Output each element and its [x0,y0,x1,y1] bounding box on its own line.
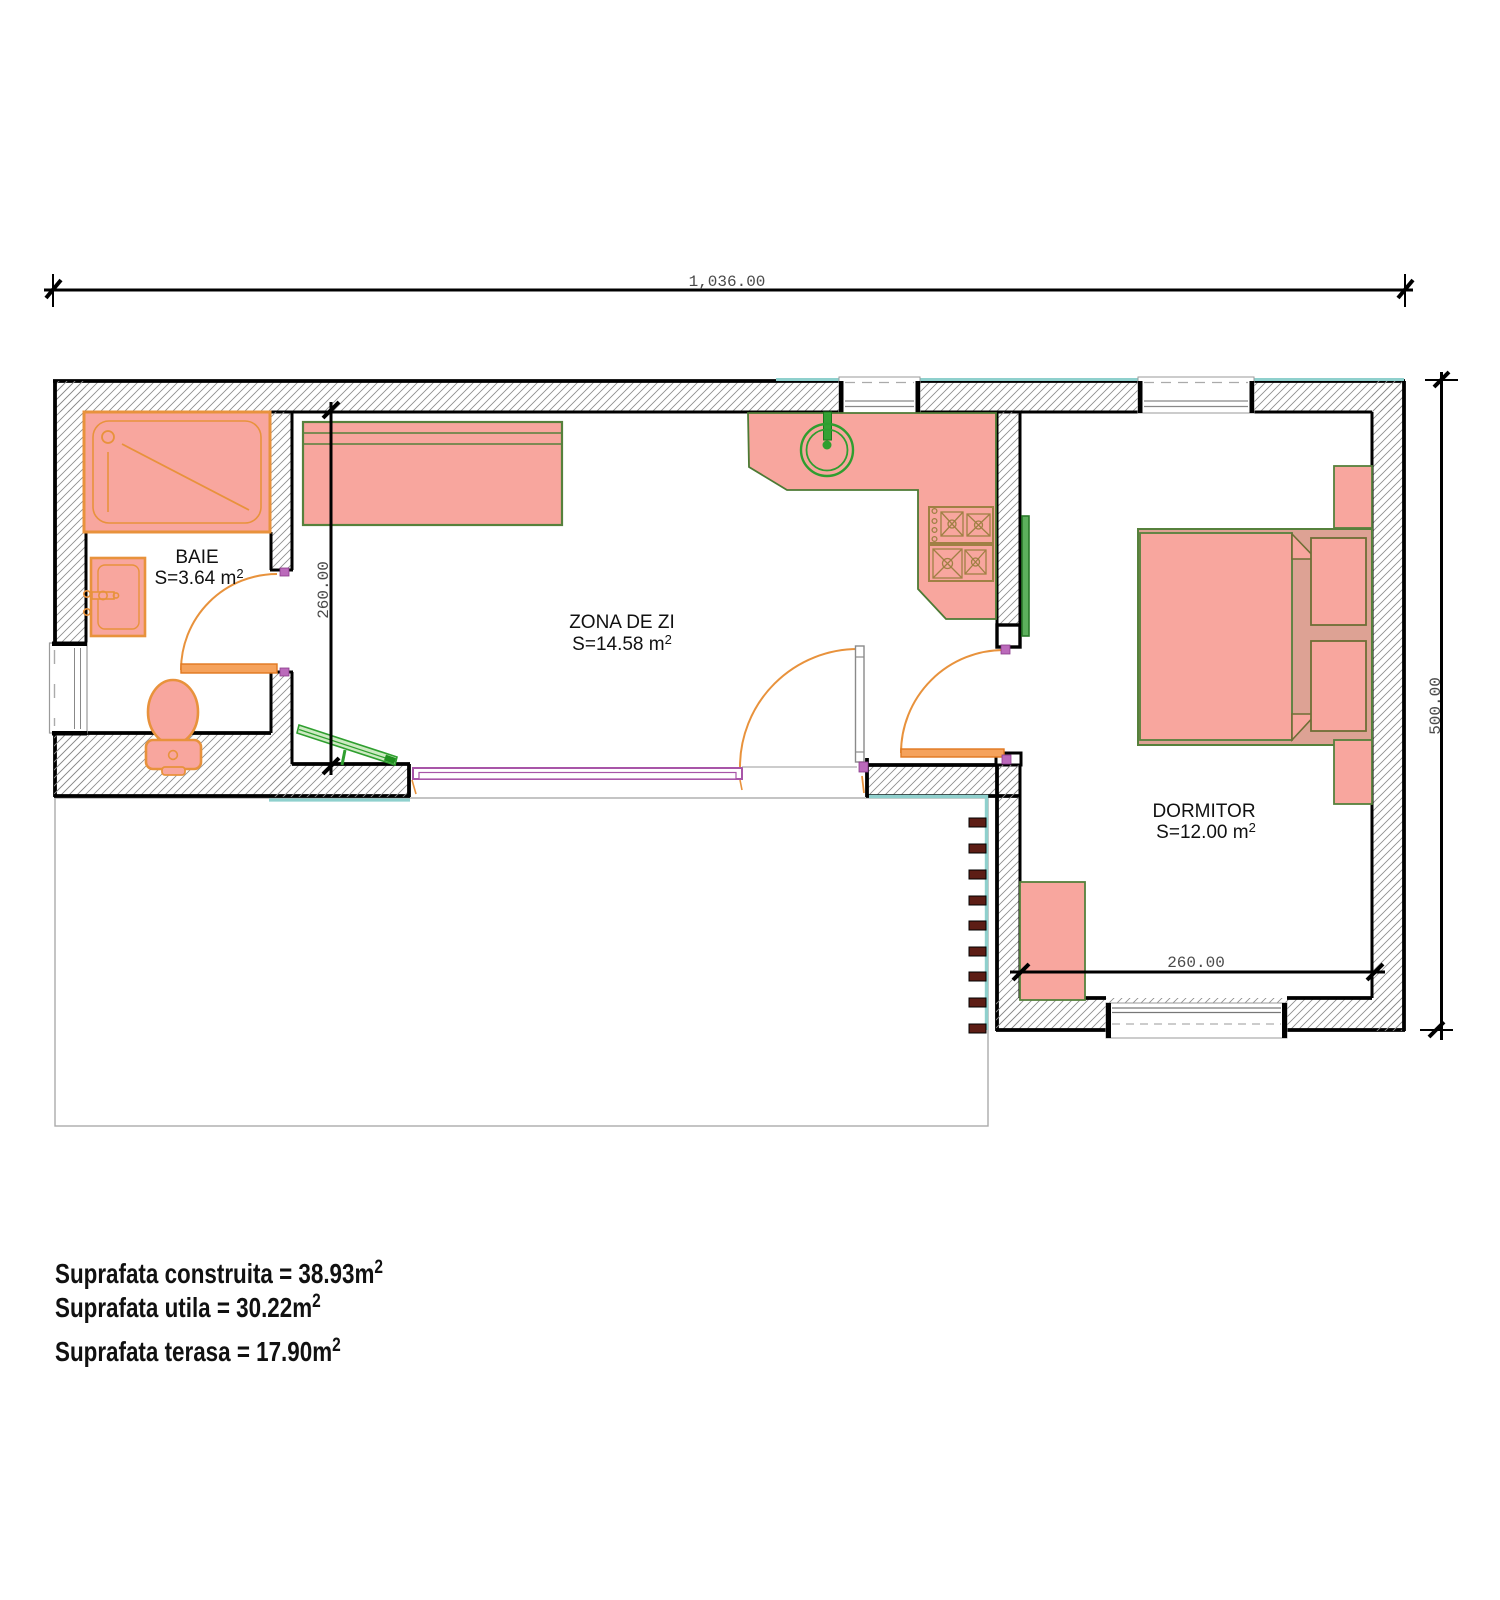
svg-text:Suprafata terasa = 17.90m2: Suprafata terasa = 17.90m2 [55,1333,341,1367]
svg-text:ZONA DE ZI: ZONA DE ZI [569,612,675,633]
svg-text:Suprafata construita = 38.93m2: Suprafata construita = 38.93m2 [55,1255,383,1289]
svg-text:260.00: 260.00 [315,561,333,619]
svg-text:260.00: 260.00 [1167,954,1225,972]
svg-text:S=14.58 m2: S=14.58 m2 [572,632,672,655]
svg-text:500.00: 500.00 [1427,677,1445,735]
svg-text:S=3.64 m2: S=3.64 m2 [154,566,243,589]
svg-text:DORMITOR: DORMITOR [1152,801,1255,822]
svg-text:BAIE: BAIE [175,547,218,568]
svg-text:Suprafata utila = 30.22m2: Suprafata utila = 30.22m2 [55,1289,321,1323]
svg-text:1,036.00: 1,036.00 [689,273,766,291]
svg-text:S=12.00 m2: S=12.00 m2 [1156,820,1256,843]
